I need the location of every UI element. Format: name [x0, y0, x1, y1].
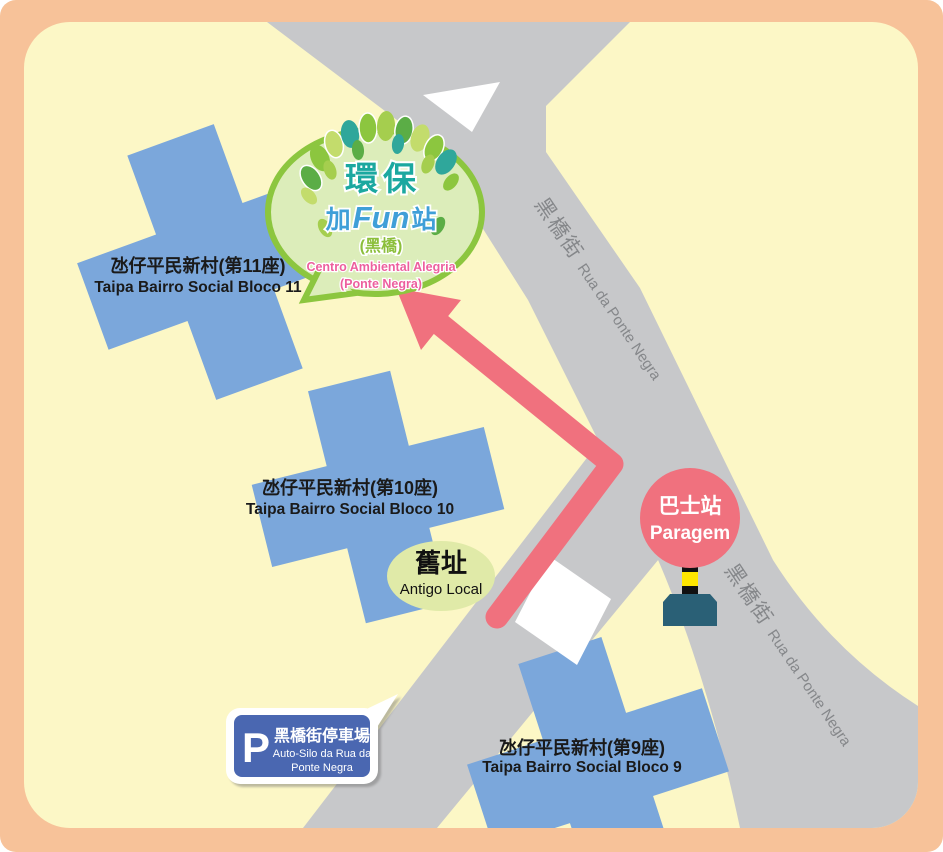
logo-subtitle-pt2: (Ponte Negra) [340, 277, 422, 291]
building-label-11: 氹仔平民新村(第11座) Taipa Bairro Social Bloco 1… [94, 255, 302, 296]
bus-stop-circle [640, 468, 740, 568]
old-site-zh: 舊址 [415, 548, 467, 578]
map-flyer: 氹仔平民新村(第11座) Taipa Bairro Social Bloco 1… [0, 0, 943, 852]
logo-title-fun: 加Fun站 [325, 200, 437, 235]
bus-stop-badge: 巴士站 Paragem [640, 468, 740, 568]
bus-pole-base [663, 594, 717, 626]
map-canvas: 氹仔平民新村(第11座) Taipa Bairro Social Bloco 1… [0, 0, 943, 852]
bus-stop-zh: 巴士站 [659, 494, 722, 518]
building-11-name-zh: 氹仔平民新村(第11座) [110, 255, 285, 276]
building-9-name-pt: Taipa Bairro Social Bloco 9 [482, 759, 682, 776]
old-site-pt: Antigo Local [400, 581, 483, 598]
old-site-badge: 舊址 Antigo Local [387, 541, 495, 611]
bus-stop-pt: Paragem [650, 523, 730, 544]
building-label-9: 氹仔平民新村(第9座) Taipa Bairro Social Bloco 9 [482, 737, 682, 776]
logo-station-zh: 站 [411, 206, 436, 234]
parking-name-zh: 黑橋街停車場 [274, 726, 370, 745]
logo-subtitle-pt: Centro Ambiental Alegria [306, 260, 456, 274]
building-9-name-zh: 氹仔平民新村(第9座) [499, 737, 665, 758]
building-10-name-pt: Taipa Bairro Social Bloco 10 [246, 501, 454, 518]
parking-icon: P [242, 724, 270, 771]
logo-subtitle-zh: (黑橋) [360, 236, 403, 255]
logo-title-zh: 環保 [345, 160, 421, 197]
bus-pole-stripe [682, 572, 698, 586]
building-label-10: 氹仔平民新村(第10座) Taipa Bairro Social Bloco 1… [246, 477, 454, 518]
building-10-name-zh: 氹仔平民新村(第10座) [262, 477, 438, 498]
building-11-name-pt: Taipa Bairro Social Bloco 11 [94, 279, 302, 296]
logo-fun-word: Fun [353, 200, 410, 235]
logo-add-zh: 加 [325, 206, 351, 234]
parking-name-pt2: Ponte Negra [291, 762, 354, 774]
parking-name-pt1: Auto-Silo da Rua da [273, 748, 372, 760]
